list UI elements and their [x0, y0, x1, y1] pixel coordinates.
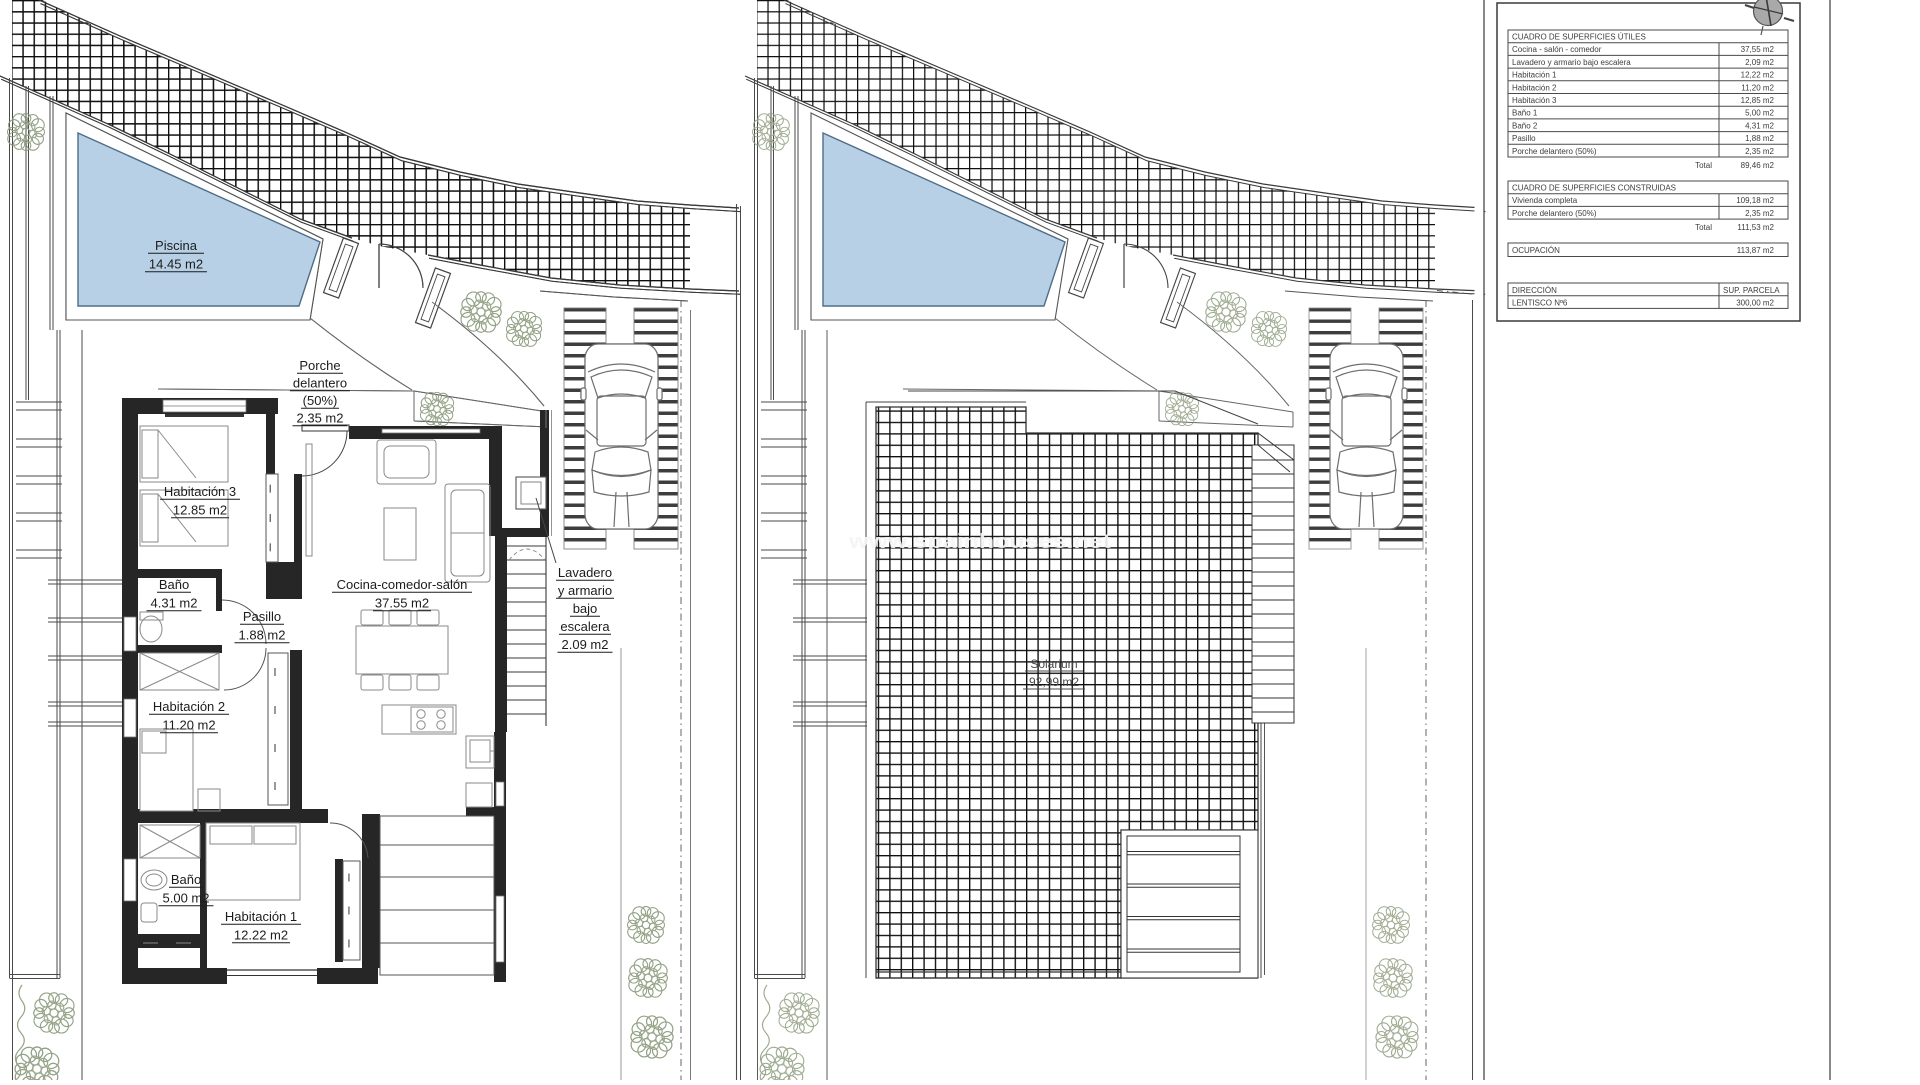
svg-text:2,35 m2: 2,35 m2 [1745, 147, 1774, 156]
svg-text:Habitación 2: Habitación 2 [153, 699, 225, 714]
svg-text:11.20 m2: 11.20 m2 [162, 718, 215, 733]
svg-text:Total: Total [1695, 161, 1712, 170]
svg-text:Habitación 3: Habitación 3 [164, 484, 236, 499]
svg-text:SUP. PARCELA: SUP. PARCELA [1723, 286, 1780, 295]
svg-text:2,09 m2: 2,09 m2 [1745, 58, 1774, 67]
svg-text:Pasillo: Pasillo [1512, 134, 1536, 143]
svg-text:12,22 m2: 12,22 m2 [1741, 71, 1775, 80]
svg-text:113,87 m2: 113,87 m2 [1737, 246, 1775, 255]
svg-text:12,85 m2: 12,85 m2 [1741, 96, 1775, 105]
svg-text:Piscina: Piscina [155, 238, 198, 253]
svg-text:37.55 m2: 37.55 m2 [375, 596, 429, 611]
svg-text:CUADRO DE SUPERFICIES CONSTRUI: CUADRO DE SUPERFICIES CONSTRUIDAS [1512, 184, 1676, 193]
svg-text:4.31 m2: 4.31 m2 [151, 596, 198, 611]
svg-text:Baño: Baño [159, 577, 189, 592]
svg-text:Porche delantero (50%): Porche delantero (50%) [1512, 147, 1597, 156]
svg-text:11,20 m2: 11,20 m2 [1741, 83, 1774, 92]
svg-text:Baño 1: Baño 1 [1512, 109, 1538, 118]
svg-text:Baño: Baño [171, 872, 201, 887]
svg-text:Vivienda completa: Vivienda completa [1512, 196, 1578, 205]
svg-text:Porche: Porche [299, 358, 340, 373]
svg-text:5,00 m2: 5,00 m2 [1745, 109, 1774, 118]
svg-text:12.85 m2: 12.85 m2 [173, 503, 227, 518]
svg-text:Pasillo: Pasillo [243, 609, 281, 624]
svg-text:Baño 2: Baño 2 [1512, 121, 1538, 130]
svg-text:2.09 m2: 2.09 m2 [562, 637, 609, 652]
svg-text:89,46 m2: 89,46 m2 [1741, 161, 1775, 170]
svg-text:Cocina-comedor-salón: Cocina-comedor-salón [337, 577, 468, 592]
svg-text:Total: Total [1695, 223, 1712, 232]
svg-text:111,53 m2: 111,53 m2 [1737, 223, 1774, 232]
svg-text:www.spainhouses.net: www.spainhouses.net [848, 531, 1112, 553]
svg-text:2,35 m2: 2,35 m2 [1745, 209, 1774, 218]
svg-text:4,31 m2: 4,31 m2 [1745, 121, 1774, 130]
svg-text:Cocina - salón - comedor: Cocina - salón - comedor [1512, 45, 1602, 54]
svg-text:Lavadero y armario bajo escale: Lavadero y armario bajo escalera [1512, 58, 1631, 67]
svg-text:DIRECCIÓN: DIRECCIÓN [1512, 286, 1557, 295]
svg-text:escalera: escalera [560, 619, 610, 634]
svg-text:OCUPACIÓN: OCUPACIÓN [1512, 246, 1560, 255]
svg-text:Porche delantero (50%): Porche delantero (50%) [1512, 209, 1597, 218]
svg-text:92,99 m2: 92,99 m2 [1029, 675, 1079, 689]
svg-text:1.88 m2: 1.88 m2 [239, 628, 286, 643]
svg-text:CUADRO DE SUPERFICIES ÚTILES: CUADRO DE SUPERFICIES ÚTILES [1512, 33, 1646, 42]
svg-text:Solarium: Solarium [1030, 657, 1077, 671]
svg-text:14.45 m2: 14.45 m2 [149, 257, 203, 272]
svg-text:1,88 m2: 1,88 m2 [1745, 134, 1774, 143]
svg-text:Habitación 1: Habitación 1 [1512, 71, 1557, 80]
svg-text:109,18 m2: 109,18 m2 [1736, 196, 1774, 205]
svg-text:Habitación 3: Habitación 3 [1512, 96, 1557, 105]
svg-text:y armario: y armario [558, 583, 612, 598]
svg-text:2.35 m2: 2.35 m2 [297, 411, 344, 426]
svg-text:delantero: delantero [293, 376, 347, 391]
svg-text:(50%): (50%) [303, 393, 338, 408]
svg-text:bajo: bajo [573, 601, 598, 616]
svg-text:Habitación 1: Habitación 1 [225, 909, 297, 924]
svg-text:LENTISCO Nº6: LENTISCO Nº6 [1512, 299, 1568, 308]
svg-text:12.22 m2: 12.22 m2 [234, 928, 288, 943]
svg-text:5.00 m2: 5.00 m2 [163, 891, 210, 906]
svg-text:Habitación 2: Habitación 2 [1512, 83, 1557, 92]
svg-text:Lavadero: Lavadero [558, 565, 612, 580]
svg-text:37,55 m2: 37,55 m2 [1741, 45, 1775, 54]
svg-text:300,00 m2: 300,00 m2 [1736, 299, 1774, 308]
